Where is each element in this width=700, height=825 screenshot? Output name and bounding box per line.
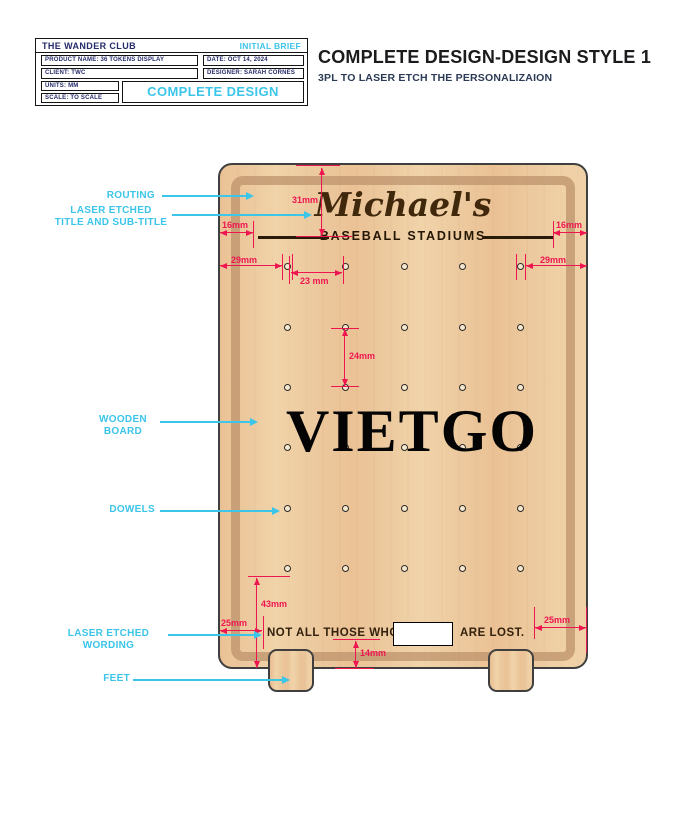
callout-etched_title-label: LASER ETCHEDTITLE AND SUB-TITLE: [52, 205, 170, 228]
dimension-spacing_v-arrowhead: [342, 379, 348, 386]
company-name: THE WANDER CLUB: [42, 41, 136, 51]
dimension-spacing_v-line: [344, 329, 345, 386]
callout-routing-label: ROUTING: [55, 190, 155, 202]
dowel-hole: [517, 565, 524, 572]
sheet-title: COMPLETE DESIGN-DESIGN STYLE 1: [318, 47, 651, 68]
callout-feet-line: [133, 679, 282, 681]
dowel-hole: [401, 505, 408, 512]
etched-wording-left: NOT ALL THOSE WHO: [267, 627, 399, 639]
dowel-hole: [459, 384, 466, 391]
dowel-hole: [401, 565, 408, 572]
callout-routing-label-line: ROUTING: [55, 190, 155, 202]
callout-dowels-arrowhead-icon: [272, 507, 280, 515]
dimension-dowel_left-tick: [282, 254, 283, 280]
dowel-hole: [517, 384, 524, 391]
callout-etched_wording-arrowhead-icon: [254, 631, 262, 639]
dimension-spacing_h-arrowhead: [291, 270, 298, 276]
dimension-title_offset-arrowhead: [319, 229, 325, 236]
dowel-hole: [517, 324, 524, 331]
dimension-spacing_v-label: 24mm: [349, 351, 383, 361]
dimension-word_bottom_14-label: 14mm: [360, 648, 394, 658]
dimension-etch_right-arrowhead: [580, 230, 587, 236]
dimension-dowel_right-arrowhead: [580, 263, 587, 269]
dimension-bottom_43-arrowhead: [254, 578, 260, 585]
dowel-hole: [459, 324, 466, 331]
dimension-bottom_43-tick: [248, 576, 290, 577]
dimension-word_bottom_14-tick: [335, 668, 374, 669]
foot-left: [268, 649, 314, 692]
dimension-dowel_right-tick: [516, 254, 517, 280]
dowel-hole: [401, 384, 408, 391]
dimension-word_right_25-tick: [534, 607, 535, 639]
dimension-word_bottom_14-tick: [333, 639, 380, 640]
dowel-hole: [342, 565, 349, 572]
callout-wooden_board-label-line: BOARD: [88, 426, 158, 438]
dimension-dowel_left-label: 29mm: [231, 255, 265, 265]
dimension-spacing_h-tick: [343, 256, 344, 284]
dimension-bottom_43-label: 43mm: [261, 599, 295, 609]
sheet-subtitle: 3PL TO LASER ETCH THE PERSONALIZAION: [318, 72, 552, 84]
dimension-spacing_h-arrowhead: [335, 270, 342, 276]
dimension-word_left_25-arrowhead: [220, 628, 227, 634]
dimension-title_offset-label: 31mm: [276, 195, 318, 205]
etched-title: Michael's: [220, 185, 586, 225]
callout-etched_wording-label: LASER ETCHEDWORDING: [52, 628, 165, 651]
dowel-hole: [401, 263, 408, 270]
dowel-hole: [517, 505, 524, 512]
dimension-spacing_v-tick: [331, 386, 359, 387]
callout-dowels-line: [160, 510, 272, 512]
dimension-dowel_left-tick: [292, 254, 293, 280]
dimension-word_right_25-arrowhead: [535, 625, 542, 631]
etched-wording-right: ARE LOST.: [460, 627, 525, 639]
dimension-bottom_43-line: [256, 578, 257, 668]
dimension-word_left_25-label: 25mm: [221, 618, 253, 628]
dimension-dowel_right-arrowhead: [526, 263, 533, 269]
dowel-hole: [284, 565, 291, 572]
callout-dowels-label: DOWELS: [55, 504, 155, 516]
dimension-dowel_right-label: 29mm: [540, 255, 574, 265]
dimension-dowel_left-line: [220, 265, 282, 266]
dimension-word_bottom_14-arrowhead: [353, 641, 359, 648]
client-cell: CLIENT: TWC: [41, 68, 198, 79]
dowel-hole: [342, 505, 349, 512]
dimension-dowel_left-arrowhead: [275, 263, 282, 269]
dimension-title_offset-arrowhead: [319, 168, 325, 175]
dimension-title_offset-line: [321, 168, 322, 236]
callout-etched_title-line: [172, 214, 304, 216]
callout-etched_title-arrowhead-icon: [304, 211, 312, 219]
design-sheet: THE WANDER CLUB INITIAL BRIEF PRODUCT NA…: [0, 0, 700, 825]
subtitle-rule-right: [482, 236, 553, 239]
callout-etched_title-label-line: TITLE AND SUB-TITLE: [52, 217, 170, 229]
dowel-hole: [284, 384, 291, 391]
dimension-word_right_25-tick: [586, 607, 587, 653]
dowel-hole: [459, 505, 466, 512]
dimension-bottom_43-arrowhead: [254, 661, 260, 668]
brief-status: INITIAL BRIEF: [240, 41, 301, 51]
callout-routing-arrowhead-icon: [246, 192, 254, 200]
white-cover-box: [393, 622, 453, 646]
callout-wooden_board-label: WOODENBOARD: [88, 414, 158, 437]
scale-cell: SCALE: TO SCALE: [41, 93, 119, 103]
callout-routing-line: [162, 195, 246, 197]
dimension-word_right_25-arrowhead: [579, 625, 586, 631]
dimension-title_offset-tick: [296, 236, 352, 237]
callout-dowels-label-line: DOWELS: [55, 504, 155, 516]
title-block: THE WANDER CLUB INITIAL BRIEF PRODUCT NA…: [35, 38, 308, 106]
dowel-hole: [284, 324, 291, 331]
product-name-cell: PRODUCT NAME: 36 TOKENS DISPLAY: [41, 55, 198, 66]
dowel-hole: [284, 505, 291, 512]
dimension-etch_right-arrowhead: [553, 230, 560, 236]
foot-right: [488, 649, 534, 692]
dimension-etch_right-tick: [553, 221, 554, 248]
dimension-etch_left-tick: [253, 221, 254, 248]
callout-wooden_board-label-line: WOODEN: [88, 414, 158, 426]
callout-feet-label-line: FEET: [55, 673, 130, 685]
callout-etched_title-label-line: LASER ETCHED: [52, 205, 170, 217]
watermark-text: VIETGO: [275, 400, 549, 462]
dimension-dowel_left-arrowhead: [220, 263, 227, 269]
dowel-hole: [517, 263, 524, 270]
dimension-word_bottom_14-arrowhead: [353, 661, 359, 668]
callout-wooden_board-arrowhead-icon: [250, 418, 258, 426]
dimension-word_right_25-label: 25mm: [544, 615, 578, 625]
dowel-hole: [401, 324, 408, 331]
dimension-etch_left-arrowhead: [246, 230, 253, 236]
design-stage-cell: COMPLETE DESIGN: [122, 81, 304, 103]
title-block-header-row: THE WANDER CLUB INITIAL BRIEF: [36, 39, 307, 53]
dimension-etch_right-label: 16mm: [556, 220, 586, 230]
dimension-dowel_right-line: [526, 265, 587, 266]
callout-feet-label: FEET: [55, 673, 130, 685]
dimension-spacing_v-arrowhead: [342, 329, 348, 336]
designer-cell: DESIGNER: SARAH CORNES: [203, 68, 304, 79]
callout-feet-arrowhead-icon: [282, 676, 290, 684]
units-cell: UNITS: MM: [41, 81, 119, 91]
dimension-title_offset-tick: [296, 165, 340, 166]
dimension-etch_left-label: 16mm: [222, 220, 252, 230]
dimension-spacing_h-tick: [289, 256, 290, 284]
date-cell: DATE: OCT 14, 2024: [203, 55, 304, 66]
callout-etched_wording-label-line: LASER ETCHED: [52, 628, 165, 640]
dimension-etch_left-arrowhead: [220, 230, 227, 236]
dowel-hole: [459, 263, 466, 270]
dimension-spacing_h-label: 23 mm: [300, 276, 334, 286]
dowel-hole: [459, 565, 466, 572]
dimension-word_left_25-tick: [263, 616, 264, 649]
dimension-dowel_right-tick: [525, 254, 526, 280]
callout-wooden_board-line: [160, 421, 250, 423]
dimension-spacing_v-tick: [331, 328, 359, 329]
callout-etched_wording-line: [168, 634, 254, 636]
callout-etched_wording-label-line: WORDING: [52, 640, 165, 652]
